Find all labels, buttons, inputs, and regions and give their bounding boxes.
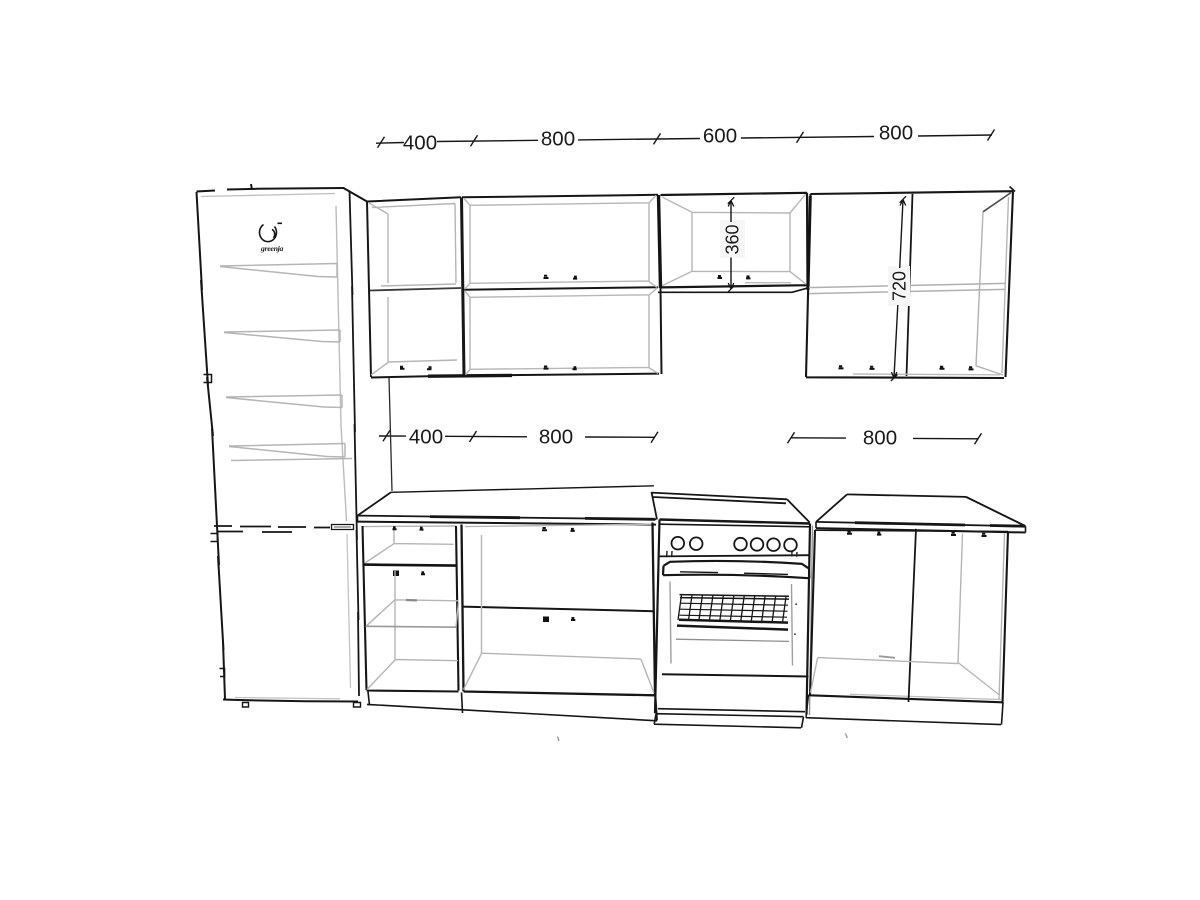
- svg-text:400: 400: [409, 425, 443, 448]
- svg-text:greenja: greenja: [260, 244, 284, 253]
- svg-text:360: 360: [723, 224, 743, 254]
- svg-text:400: 400: [403, 132, 437, 155]
- svg-text:720: 720: [890, 271, 910, 301]
- svg-text:600: 600: [703, 125, 737, 148]
- svg-text:800: 800: [539, 426, 573, 449]
- svg-text:800: 800: [879, 122, 913, 145]
- svg-text:800: 800: [863, 427, 897, 450]
- svg-text:800: 800: [541, 128, 575, 151]
